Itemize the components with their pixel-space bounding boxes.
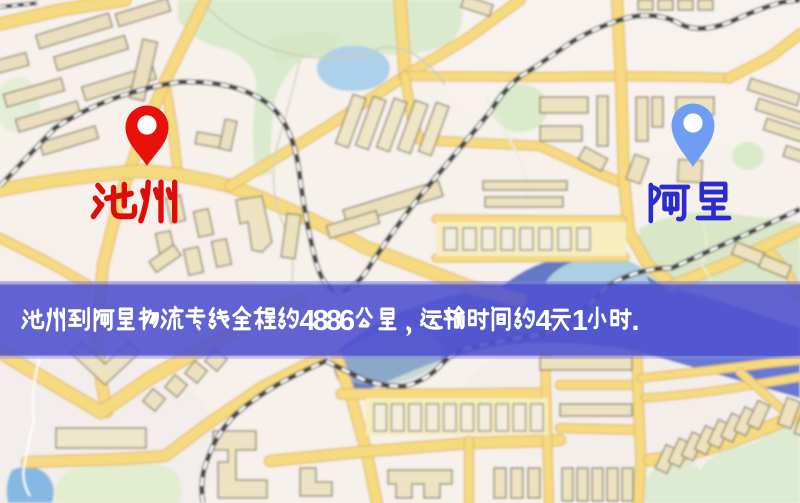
- svg-text:.: .: [632, 305, 640, 337]
- svg-text:4: 4: [536, 305, 552, 337]
- svg-text:6: 6: [339, 305, 355, 337]
- svg-text:1: 1: [572, 305, 588, 337]
